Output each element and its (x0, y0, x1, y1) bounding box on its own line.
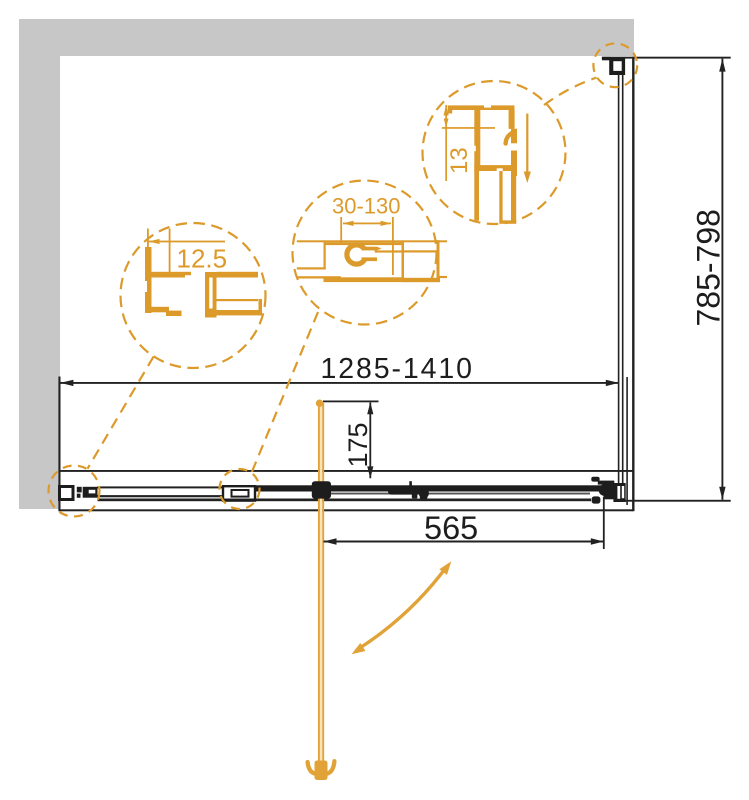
svg-text:785-798: 785-798 (691, 209, 727, 326)
svg-text:1285-1410: 1285-1410 (321, 353, 474, 385)
svg-text:175: 175 (343, 422, 373, 467)
svg-text:13: 13 (446, 147, 473, 174)
svg-text:565: 565 (424, 510, 478, 546)
svg-text:12.5: 12.5 (177, 243, 228, 273)
svg-text:30-130: 30-130 (332, 194, 401, 219)
